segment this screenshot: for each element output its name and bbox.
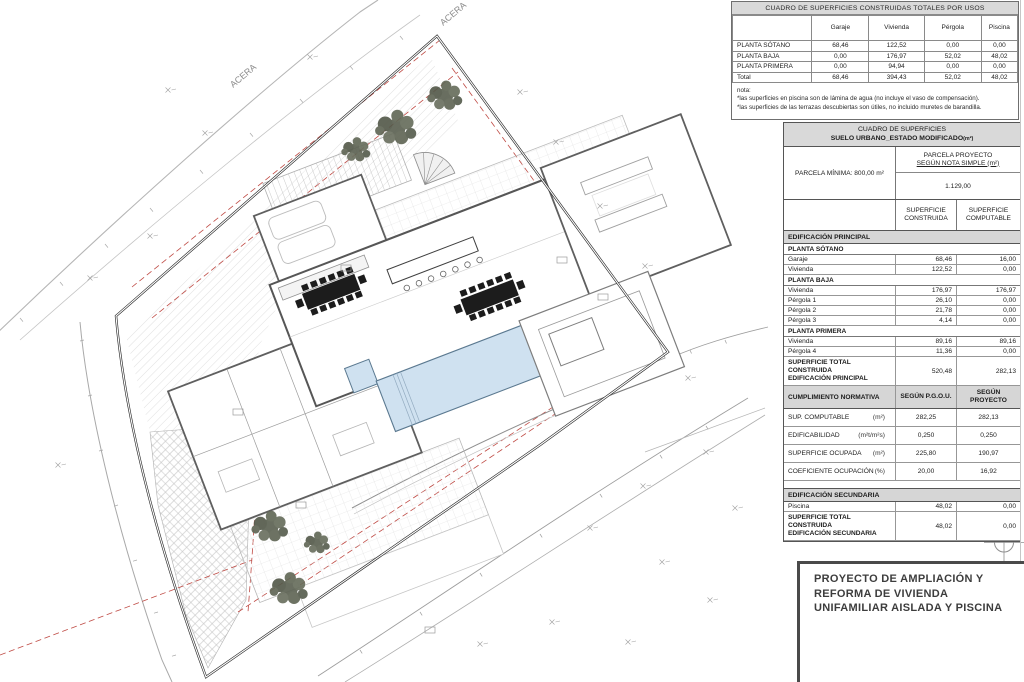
table-row: Total 68,46 394,43 52,02 48,02 — [733, 72, 1018, 83]
cell: 48,02 — [981, 51, 1017, 62]
cell: 21,78 — [895, 306, 956, 315]
cell: 520,48 — [895, 357, 956, 385]
table-row: Pérgola 3 4,14 0,00 — [784, 316, 1020, 326]
subsection-label: PLANTA PRIMERA — [784, 326, 1020, 337]
row-label: Garaje — [784, 255, 895, 264]
site-plan: ACERA ACERA — [0, 0, 782, 682]
table-row: SUPERFICIE OCUPADA(m²) 225,80 190,97 — [784, 445, 1020, 463]
table-row: PLANTA SÓTANO 68,46 122,52 0,00 0,00 — [733, 41, 1018, 52]
project-title-line: REFORMA DE VIVIENDA — [814, 587, 1024, 602]
cell: 68,46 — [895, 255, 956, 264]
row-label: Pérgola 3 — [784, 316, 895, 325]
cell: 0,00 — [956, 512, 1020, 540]
table-row: SUP. COMPUTABLE(m²) 282,25 282,13 — [784, 409, 1020, 427]
acera-label: ACERA — [228, 62, 258, 90]
row-label: Vivienda — [784, 286, 895, 295]
row-label: Pérgola 1 — [784, 296, 895, 305]
cell: 282,13 — [956, 357, 1020, 385]
cell: 0,00 — [812, 62, 869, 73]
cell: 225,80 — [895, 445, 956, 462]
table-row: Piscina 48,02 0,00 — [784, 502, 1020, 512]
cell: 52,02 — [924, 72, 981, 83]
cell: 0,00 — [956, 502, 1020, 511]
cell: 0,00 — [812, 51, 869, 62]
usage-header-row: Garaje Vivienda Pérgola Piscina — [733, 16, 1018, 41]
col-header: SUPERFICIE COMPUTABLE — [956, 200, 1020, 230]
cell: 394,43 — [869, 72, 924, 83]
col-header: SUPERFICIE CONSTRUIDA — [895, 200, 956, 230]
cell: 26,10 — [895, 296, 956, 305]
cell: 48,02 — [895, 502, 956, 511]
cell: 48,02 — [895, 512, 956, 540]
table-row: Pérgola 1 26,10 0,00 — [784, 296, 1020, 306]
cell: 94,94 — [869, 62, 924, 73]
cell: 52,02 — [924, 51, 981, 62]
table-row: Garaje 68,46 16,00 — [784, 255, 1020, 265]
col-header: CUMPLIMIENTO NORMATIVA — [784, 386, 895, 408]
normativa-header: CUMPLIMIENTO NORMATIVA SEGÚN P.G.O.U. SE… — [784, 386, 1020, 409]
col-header — [733, 16, 812, 41]
cell: 16,92 — [956, 463, 1020, 480]
cell: 0,00 — [956, 296, 1020, 305]
section-bar: EDIFICACIÓN PRINCIPAL — [784, 231, 1020, 244]
project-title-line: UNIFAMILIAR AISLADA Y PISCINA — [814, 601, 1024, 616]
total-principal-row: SUPERFICIE TOTAL CONSTRUIDA EDIFICACIÓN … — [784, 357, 1020, 386]
note-line: *las superficies de las terrazas descubi… — [737, 104, 1013, 112]
sheet: ACERA ACERA — [0, 0, 1024, 682]
cell: 0,250 — [895, 427, 956, 444]
cell: 4,14 — [895, 316, 956, 325]
cell: 0,00 — [981, 62, 1017, 73]
cell: 176,97 — [869, 51, 924, 62]
col-header: Piscina — [981, 16, 1017, 41]
cell: 16,00 — [956, 255, 1020, 264]
cell: 0,00 — [956, 347, 1020, 356]
surface-column-headers: SUPERFICIE CONSTRUIDA SUPERFICIE COMPUTA… — [784, 200, 1020, 231]
cell: 282,13 — [956, 409, 1020, 426]
cell: 11,36 — [895, 347, 956, 356]
parcela-proyecto-label: PARCELA PROYECTO SEGÚN NOTA SIMPLE (m²) — [896, 147, 1020, 173]
row-label: Total — [733, 72, 812, 83]
title-block: PROYECTO DE AMPLIACIÓN Y REFORMA DE VIVI… — [797, 561, 1024, 682]
table-row: Pérgola 4 11,36 0,00 — [784, 347, 1020, 357]
parcela-minima: PARCELA MÍNIMA: 800,00 m² — [784, 147, 895, 199]
row-label: PLANTA BAJA — [733, 51, 812, 62]
surface-table: CUADRO DE SUPERFICIES SUELO URBANO_ESTAD… — [783, 122, 1021, 542]
table-row: Vivienda 176,97 176,97 — [784, 286, 1020, 296]
cell: 0,00 — [981, 41, 1017, 52]
col-header: Garaje — [812, 16, 869, 41]
cell: 0,00 — [956, 265, 1020, 274]
table-row: PLANTA PRIMERA 0,00 94,94 0,00 0,00 — [733, 62, 1018, 73]
table-row: Vivienda 89,16 89,16 — [784, 337, 1020, 347]
total-secundaria-row: SUPERFICIE TOTAL CONSTRUIDA EDIFICACIÓN … — [784, 512, 1020, 541]
note-line: *las superficies en piscina son de lámin… — [737, 95, 1013, 103]
parcela-proyecto-value: 1.129,00 — [896, 173, 1020, 199]
title-line: CUADRO DE SUPERFICIES — [786, 126, 1018, 135]
cell: 176,97 — [956, 286, 1020, 295]
table-row: Pérgola 2 21,78 0,00 — [784, 306, 1020, 316]
row-label: SUP. COMPUTABLE — [788, 414, 849, 421]
cell: 68,46 — [812, 41, 869, 52]
row-label: Pérgola 4 — [784, 347, 895, 356]
cell: 20,00 — [895, 463, 956, 480]
usage-table: CUADRO DE SUPERFICIES CONSTRUIDAS TOTALE… — [731, 1, 1019, 120]
cell: 122,52 — [895, 265, 956, 274]
table-row: COEFICIENTE OCUPACIÓN(%) 20,00 16,92 — [784, 463, 1020, 481]
row-label: EDIFICABILIDAD — [788, 432, 840, 439]
col-header: SEGÚN P.G.O.U. — [895, 386, 956, 408]
row-label: Piscina — [784, 502, 895, 511]
row-label: SUPERFICIE OCUPADA — [788, 450, 862, 457]
cell: 176,97 — [895, 286, 956, 295]
cell: 68,46 — [812, 72, 869, 83]
cell: 0,00 — [956, 316, 1020, 325]
subsection-label: PLANTA SÓTANO — [784, 244, 1020, 255]
row-label: PLANTA SÓTANO — [733, 41, 812, 52]
usage-table-title: CUADRO DE SUPERFICIES CONSTRUIDAS TOTALE… — [732, 2, 1018, 15]
acera-label-2: ACERA — [438, 0, 468, 28]
table-row: Vivienda 122,52 0,00 — [784, 265, 1020, 275]
col-header: SEGÚN PROYECTO — [956, 386, 1020, 408]
parcela-row: PARCELA MÍNIMA: 800,00 m² PARCELA PROYEC… — [784, 147, 1020, 200]
title-line: SUELO URBANO_ESTADO MODIFICADO(m²) — [786, 135, 1018, 144]
cell: 282,25 — [895, 409, 956, 426]
cell: 0,250 — [956, 427, 1020, 444]
cell: 190,97 — [956, 445, 1020, 462]
row-label: Pérgola 2 — [784, 306, 895, 315]
table-row: PLANTA BAJA 0,00 176,97 52,02 48,02 — [733, 51, 1018, 62]
row-label: PLANTA PRIMERA — [733, 62, 812, 73]
note-line: nota: — [737, 87, 1013, 95]
table-row: EDIFICABILIDAD(m²t/m²s) 0,250 0,250 — [784, 427, 1020, 445]
cell: 0,00 — [924, 62, 981, 73]
sheet-edge-line — [1020, 0, 1021, 562]
usage-notes: nota: *las superficies en piscina son de… — [732, 83, 1018, 117]
col-header: Pérgola — [924, 16, 981, 41]
cell: 89,16 — [895, 337, 956, 346]
cell: 0,00 — [956, 306, 1020, 315]
spacer — [784, 481, 1020, 489]
project-title-line: PROYECTO DE AMPLIACIÓN Y — [814, 572, 1024, 587]
row-label: Vivienda — [784, 265, 895, 274]
surface-table-title: CUADRO DE SUPERFICIES SUELO URBANO_ESTAD… — [784, 123, 1020, 147]
cell: 48,02 — [981, 72, 1017, 83]
cell: 0,00 — [924, 41, 981, 52]
row-label: COEFICIENTE OCUPACIÓN — [788, 468, 874, 475]
usage-grid: Garaje Vivienda Pérgola Piscina PLANTA S… — [732, 15, 1018, 83]
section-bar: EDIFICACIÓN SECUNDARIA — [784, 489, 1020, 502]
row-label: Vivienda — [784, 337, 895, 346]
cell: 89,16 — [956, 337, 1020, 346]
col-header: Vivienda — [869, 16, 924, 41]
subsection-label: PLANTA BAJA — [784, 275, 1020, 286]
cell: 122,52 — [869, 41, 924, 52]
